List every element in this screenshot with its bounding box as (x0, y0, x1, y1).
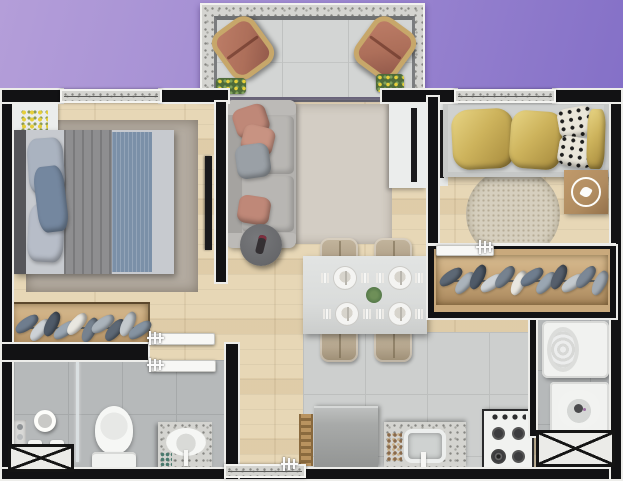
wall-laundry-left (528, 316, 538, 438)
floor-plan-canvas (0, 0, 623, 481)
step-ladder (299, 414, 313, 466)
washer-lid (547, 327, 579, 372)
toilet (92, 406, 136, 470)
wall-left (0, 88, 14, 481)
gold-pillow (508, 109, 564, 170)
toilet-bowl (95, 406, 133, 454)
door-handle (474, 238, 496, 256)
cutlery (324, 273, 326, 283)
cutlery (379, 309, 381, 319)
cutlery (418, 273, 420, 283)
tv-remote (255, 234, 267, 254)
stove-burner-double (491, 449, 506, 464)
place-setting-plate (389, 303, 411, 325)
dining-table (303, 256, 427, 334)
accent-pillow-gray (234, 142, 272, 180)
bedroom2-side-table (564, 170, 608, 214)
small-plant (160, 452, 172, 466)
bedroom2-wardrobe-box (428, 246, 616, 318)
headboard (14, 130, 26, 274)
shaft-crossed-box-bathroom (8, 444, 74, 472)
shampoo-bottle (17, 424, 23, 430)
cutlery (366, 309, 368, 319)
gray-blanket (64, 130, 112, 274)
place-setting-plate (336, 303, 358, 325)
gas-stove (482, 409, 534, 469)
shaft-crossed-box-laundry (536, 430, 615, 467)
blue-bed-runner (112, 132, 152, 272)
window-bedroom1 (60, 89, 162, 103)
place-setting-plate (389, 267, 411, 289)
kitchen-counter (384, 422, 466, 468)
round-side-table (240, 224, 282, 266)
stove-knobs (490, 414, 526, 420)
bedroom1-tv (205, 156, 212, 250)
living-room-tv (411, 108, 417, 182)
shower-head (34, 410, 56, 432)
wall-top-segment (552, 88, 623, 104)
cutlery (364, 273, 366, 283)
refrigerator (314, 406, 378, 467)
bedroom2-wardrobe-rack (436, 255, 608, 305)
place-setting-plate (334, 267, 356, 289)
bathroom-sink-counter (158, 422, 212, 468)
cutlery (326, 309, 328, 319)
gold-pillow (450, 107, 515, 170)
wall-bedroom1-living (214, 100, 228, 284)
stove-burner (512, 427, 525, 440)
bedroom1-bed (14, 130, 174, 274)
bedroom2-bed (443, 100, 609, 177)
wall-bathroom-right (224, 342, 240, 481)
laundry-tub (550, 382, 609, 437)
accent-pillow-salmon (236, 194, 272, 227)
sink-faucet (184, 450, 188, 466)
wall-bedroom2-left (426, 95, 440, 253)
table-centerpiece-plant (366, 287, 382, 303)
window-bedroom2 (454, 89, 556, 103)
wall-top-segment (0, 88, 64, 104)
balcony (200, 3, 425, 97)
cutlery (418, 309, 420, 319)
cutlery (379, 273, 381, 283)
tub-drain (574, 404, 583, 413)
tv-cabinet (389, 102, 427, 188)
washing-machine (542, 321, 609, 378)
stove-burner (512, 450, 525, 463)
shampoo-bottle (17, 434, 23, 440)
stove-burner (492, 427, 505, 440)
service-door-handle (278, 455, 300, 473)
living-room-rug (282, 104, 392, 244)
gold-headrest-pillow (586, 109, 606, 170)
door-handle (144, 356, 166, 374)
door-handle (144, 329, 166, 347)
shower-glass-partition (76, 362, 79, 462)
dried-flowers (386, 432, 402, 462)
wall-top-segment (380, 88, 458, 104)
wall-bathroom-top (0, 342, 150, 362)
wall-bottom (0, 467, 623, 481)
